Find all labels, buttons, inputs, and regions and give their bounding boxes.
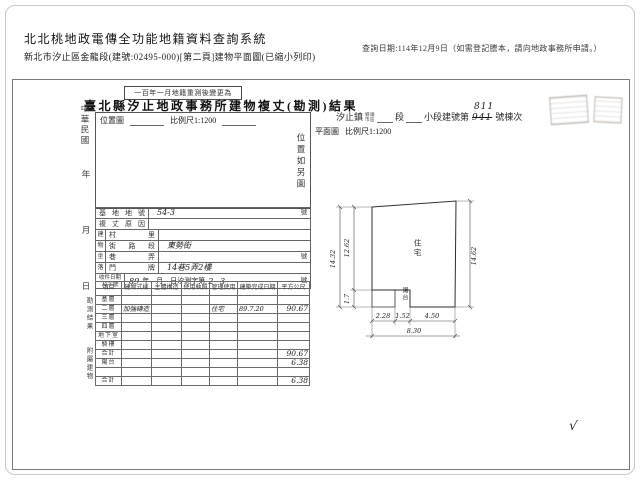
measure-cell: 90.67: [278, 305, 310, 314]
field-label: 村里: [106, 230, 159, 240]
measure-row-label: 合計: [96, 350, 122, 359]
measure-cell: [182, 296, 210, 305]
measure-cell: [238, 368, 278, 377]
measure-cell: [278, 341, 310, 350]
measure-cell: [278, 368, 310, 377]
measure-row-label: 合計: [96, 377, 122, 386]
measure-cell: [210, 350, 238, 359]
group-char: 落: [96, 263, 106, 273]
measure-cell: [122, 314, 152, 323]
info-row-survey-reason: 複丈原因: [96, 219, 310, 230]
measure-cell: [152, 368, 182, 377]
measure-table: 項目建物式樣主體構造使用執照管理使用建築完成日期平方公尺基層二層加強磚造住宅89…: [95, 281, 310, 386]
floor-plan-drawing: 2.28 1.52 4.50 8.30 14.62 14.32 12.62 1.…: [330, 180, 630, 355]
town-unit-stack: 鄉鎮 市區: [365, 113, 375, 123]
measure-row: 合計90.67: [96, 350, 310, 359]
dim-bottom-2: 1.52: [395, 312, 409, 320]
balcony-outline: [372, 290, 395, 307]
field-label: 街路段: [106, 241, 159, 251]
group-char: 物: [96, 241, 106, 251]
measure-cell: 6.38: [278, 377, 310, 386]
field-value: [159, 252, 298, 262]
measure-cell: [152, 323, 182, 332]
strip-era-label: 中華民國: [79, 104, 91, 146]
field-value: 14巷5弄2樓: [159, 263, 298, 273]
measure-cell: [122, 332, 152, 341]
location-note: 位置如另圖: [295, 133, 307, 191]
field-suffix: 號: [298, 252, 310, 262]
measure-cell: [238, 359, 278, 368]
measure-row: 騎樓: [96, 341, 310, 350]
measure-cell: [152, 332, 182, 341]
measure-cell: 89.7.20: [238, 305, 278, 314]
measure-cell: [210, 314, 238, 323]
parcel-info-table: 基地地號 54-3 號 複丈原因 建 村里 物 街路段 東勢街 坐 巷弄 號 落…: [95, 207, 311, 289]
measure-cell: 加強磚造: [122, 305, 152, 314]
measure-cell: [278, 332, 310, 341]
measure-row-label: [96, 368, 122, 377]
blank-line: [222, 117, 256, 126]
measure-header-cell: 使用執照: [182, 282, 210, 296]
measure-header-row: 項目建物式樣主體構造使用執照管理使用建築完成日期平方公尺: [96, 282, 310, 296]
measure-row: 合計6.38: [96, 377, 310, 386]
field-suffix: 號: [298, 208, 310, 218]
location-map-box: 位置圖 比例尺1:1200: [95, 112, 311, 209]
measure-cell: [278, 314, 310, 323]
section-suffix: 段: [395, 110, 404, 123]
measure-row-label: 三層: [96, 314, 122, 323]
measure-row-label: 陽台: [96, 359, 122, 368]
system-title: 北北桃地政電傳全功能地籍資料查詢系統: [24, 30, 267, 47]
strip-day-label: 日: [79, 280, 93, 292]
measure-cell: [210, 359, 238, 368]
measure-cell: [182, 341, 210, 350]
field-suffix: [298, 241, 310, 251]
location-map-label: 位置圖: [100, 115, 124, 126]
document-subtitle: 新北市汐止區金龍段(建號:02495-000)[第二頁]建物平面圖(已縮小列印): [24, 50, 315, 63]
measure-cell: [152, 341, 182, 350]
query-date: 查詢日期:114年12月9日（如需登記謄本，請向地政事務所申請。）: [362, 43, 602, 54]
blank-line: [377, 114, 393, 123]
measure-row: 三層: [96, 314, 310, 323]
measure-cell: [182, 305, 210, 314]
measure-row-label: 二層: [96, 305, 122, 314]
measure-header-cell: 建築完成日期: [238, 282, 278, 296]
measure-row-label: 騎樓: [96, 341, 122, 350]
measure-cell: [152, 296, 182, 305]
plan-label: 平面圖: [315, 126, 339, 137]
unit-bottom: 市區: [365, 117, 375, 122]
measure-row: 陽台6.38: [96, 359, 310, 368]
measure-cell: [210, 368, 238, 377]
measure-row-label: 基層: [96, 296, 122, 305]
group-char: 坐: [96, 252, 106, 262]
field-suffix: [298, 230, 310, 240]
field-suffix: [298, 219, 310, 229]
building-number: 941 811: [472, 112, 492, 123]
info-row-lane: 坐 巷弄 號: [96, 252, 310, 263]
building-number-tail: 號棟次: [495, 110, 522, 123]
measure-cell: [278, 296, 310, 305]
dim-bottom-1: 2.28: [375, 312, 390, 320]
measure-cell: [122, 296, 152, 305]
field-label: 複丈原因: [96, 219, 149, 229]
measure-header-cell: 管理使用: [210, 282, 238, 296]
town-label: 汐止鎮: [336, 110, 363, 123]
dim-bottom-3: 4.50: [424, 312, 439, 320]
measure-cell: [238, 341, 278, 350]
measure-cell: [238, 314, 278, 323]
blank-line: [406, 114, 422, 123]
measure-cell: [210, 323, 238, 332]
measure-row-label: 四層: [96, 323, 122, 332]
measure-cell: 住宅: [210, 305, 238, 314]
field-value: 東勢街: [159, 241, 298, 251]
dim-left-inner: 12.62: [343, 239, 351, 258]
measure-cell: 90.67: [278, 350, 310, 359]
dim-left-outer: 14.32: [330, 250, 337, 269]
measure-cell: [182, 377, 210, 386]
measure-cell: [152, 305, 182, 314]
measure-cell: [122, 323, 152, 332]
dim-bottom-total: 8.30: [407, 327, 421, 335]
measure-cell: [210, 377, 238, 386]
measure-cell: [182, 314, 210, 323]
field-suffix: [298, 263, 310, 273]
measure-cell: [238, 350, 278, 359]
strip-month-label: 月: [79, 224, 93, 236]
building-number-crossed: 941: [472, 113, 492, 123]
balcony-label: 陽台: [400, 287, 409, 301]
measure-cell: [182, 332, 210, 341]
blank-line: [130, 117, 164, 126]
faint-stamp: [593, 96, 622, 123]
measure-cell: [152, 377, 182, 386]
measure-row-label: 地下室: [96, 332, 122, 341]
building-number-handwritten: 811: [474, 102, 494, 112]
field-label: 巷弄: [106, 252, 159, 262]
measure-row: [96, 368, 310, 377]
measure-cell: [238, 377, 278, 386]
measure-header-cell: 平方公尺: [278, 282, 310, 296]
field-value: [149, 219, 298, 229]
measure-cell: 6.38: [278, 359, 310, 368]
measure-cell: [122, 350, 152, 359]
plan-scale: 比例尺1:1200: [345, 126, 391, 137]
site-line: 汐止鎮 鄉鎮 市區 段 小段建號第 941 811 號棟次: [336, 110, 522, 123]
measure-row: 二層加強磚造住宅89.7.2090.67: [96, 305, 310, 314]
strip-survey-result-label: 勘測結果: [83, 297, 93, 331]
plan-head: 平面圖 比例尺1:1200: [315, 126, 391, 137]
measure-cell: [210, 332, 238, 341]
dim-notch: 1.7: [343, 293, 351, 304]
measure-row: 四層: [96, 323, 310, 332]
strip-year-label: 年: [79, 168, 93, 180]
group-char: 建: [96, 230, 106, 240]
measure-cell: [182, 350, 210, 359]
measure-cell: [122, 341, 152, 350]
room-use-label: 住宅: [412, 239, 423, 258]
measure-cell: [152, 359, 182, 368]
location-map-scale: 比例尺1:1200: [170, 115, 216, 126]
measure-cell: [238, 332, 278, 341]
measure-header-cell: 項目: [96, 282, 122, 296]
measure-cell: [182, 368, 210, 377]
measure-header-cell: 建物式樣: [122, 282, 152, 296]
measure-header-cell: 主體構造: [152, 282, 182, 296]
measure-cell: [122, 377, 152, 386]
measure-row: 基層: [96, 296, 310, 305]
measure-cell: [238, 296, 278, 305]
info-row-street: 物 街路段 東勢街: [96, 241, 310, 252]
field-value: [159, 230, 298, 240]
measure-cell: [238, 323, 278, 332]
measure-cell: [152, 350, 182, 359]
info-row-village: 建 村里: [96, 230, 310, 241]
measure-cell: [122, 359, 152, 368]
measure-cell: [152, 314, 182, 323]
subsection-label: 小段建號第: [424, 110, 469, 123]
measure-cell: [122, 368, 152, 377]
field-label: 門牌: [106, 263, 159, 273]
field-label: 基地地號: [96, 208, 149, 218]
strip-accessory-building-label: 附屬建物: [83, 347, 93, 381]
measure-row: 地下室: [96, 332, 310, 341]
info-row-door-plate: 落 門牌 14巷5弄2樓: [96, 263, 310, 274]
measure-cell: [182, 323, 210, 332]
field-value: 54-3: [149, 208, 298, 218]
dim-right: 14.62: [470, 247, 478, 266]
measure-cell: [182, 359, 210, 368]
measure-cell: [210, 341, 238, 350]
measure-cell: [278, 323, 310, 332]
measure-cell: [210, 296, 238, 305]
faint-stamp: [549, 95, 589, 126]
info-row-lot-number: 基地地號 54-3 號: [96, 208, 310, 219]
